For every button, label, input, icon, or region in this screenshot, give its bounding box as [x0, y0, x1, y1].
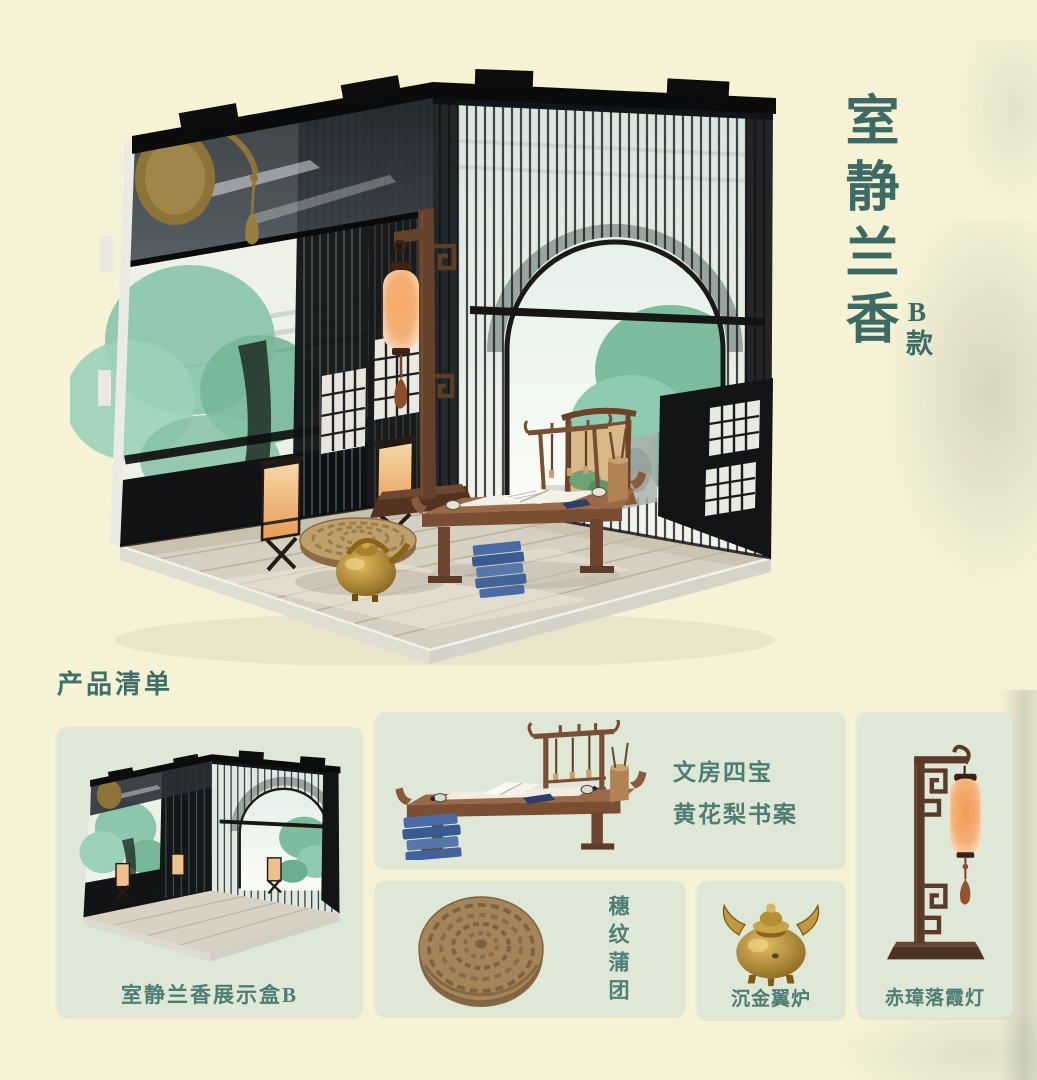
hero-diorama-photo [70, 40, 810, 665]
desk-label-line2: 黄花梨书案 [673, 794, 798, 836]
desk-photo [387, 720, 659, 860]
panel-display-box: 室静兰香展示盒B [57, 727, 362, 1017]
hanging-lantern [950, 779, 980, 854]
lamp-photo [871, 718, 999, 980]
lamp-caption: 赤璋落霞灯 [857, 983, 1013, 1010]
hanging-lantern [383, 270, 419, 350]
censer-caption: 沉金翼炉 [697, 984, 845, 1011]
variant-badge: B款 [903, 297, 930, 358]
display-box-photo [65, 737, 355, 972]
panel-lamp: 赤璋落霞灯 [857, 712, 1013, 1018]
panel-cushion: 穗纹蒲团 [375, 881, 685, 1016]
ink-wash-decoration [955, 40, 1037, 210]
panel-desk: 文房四宝 黄花梨书案 [375, 712, 845, 868]
cushion-label: 穗纹蒲团 [603, 895, 633, 1007]
product-title: 室静兰香 [840, 92, 894, 356]
desk-label-line1: 文房四宝 [673, 752, 798, 794]
product-poster: 室静兰香 B款 产品清单 [0, 0, 1037, 1080]
ink-wash-decoration [880, 220, 1037, 600]
floor-lamp [887, 747, 985, 960]
censer [723, 903, 818, 986]
censer-photo [705, 883, 837, 987]
cushion-photo [403, 885, 563, 1013]
panel-censer: 沉金翼炉 [697, 881, 845, 1019]
display-box-caption: 室静兰香展示盒B [57, 979, 362, 1009]
section-heading: 产品清单 [57, 664, 173, 701]
book-stack [401, 813, 463, 860]
